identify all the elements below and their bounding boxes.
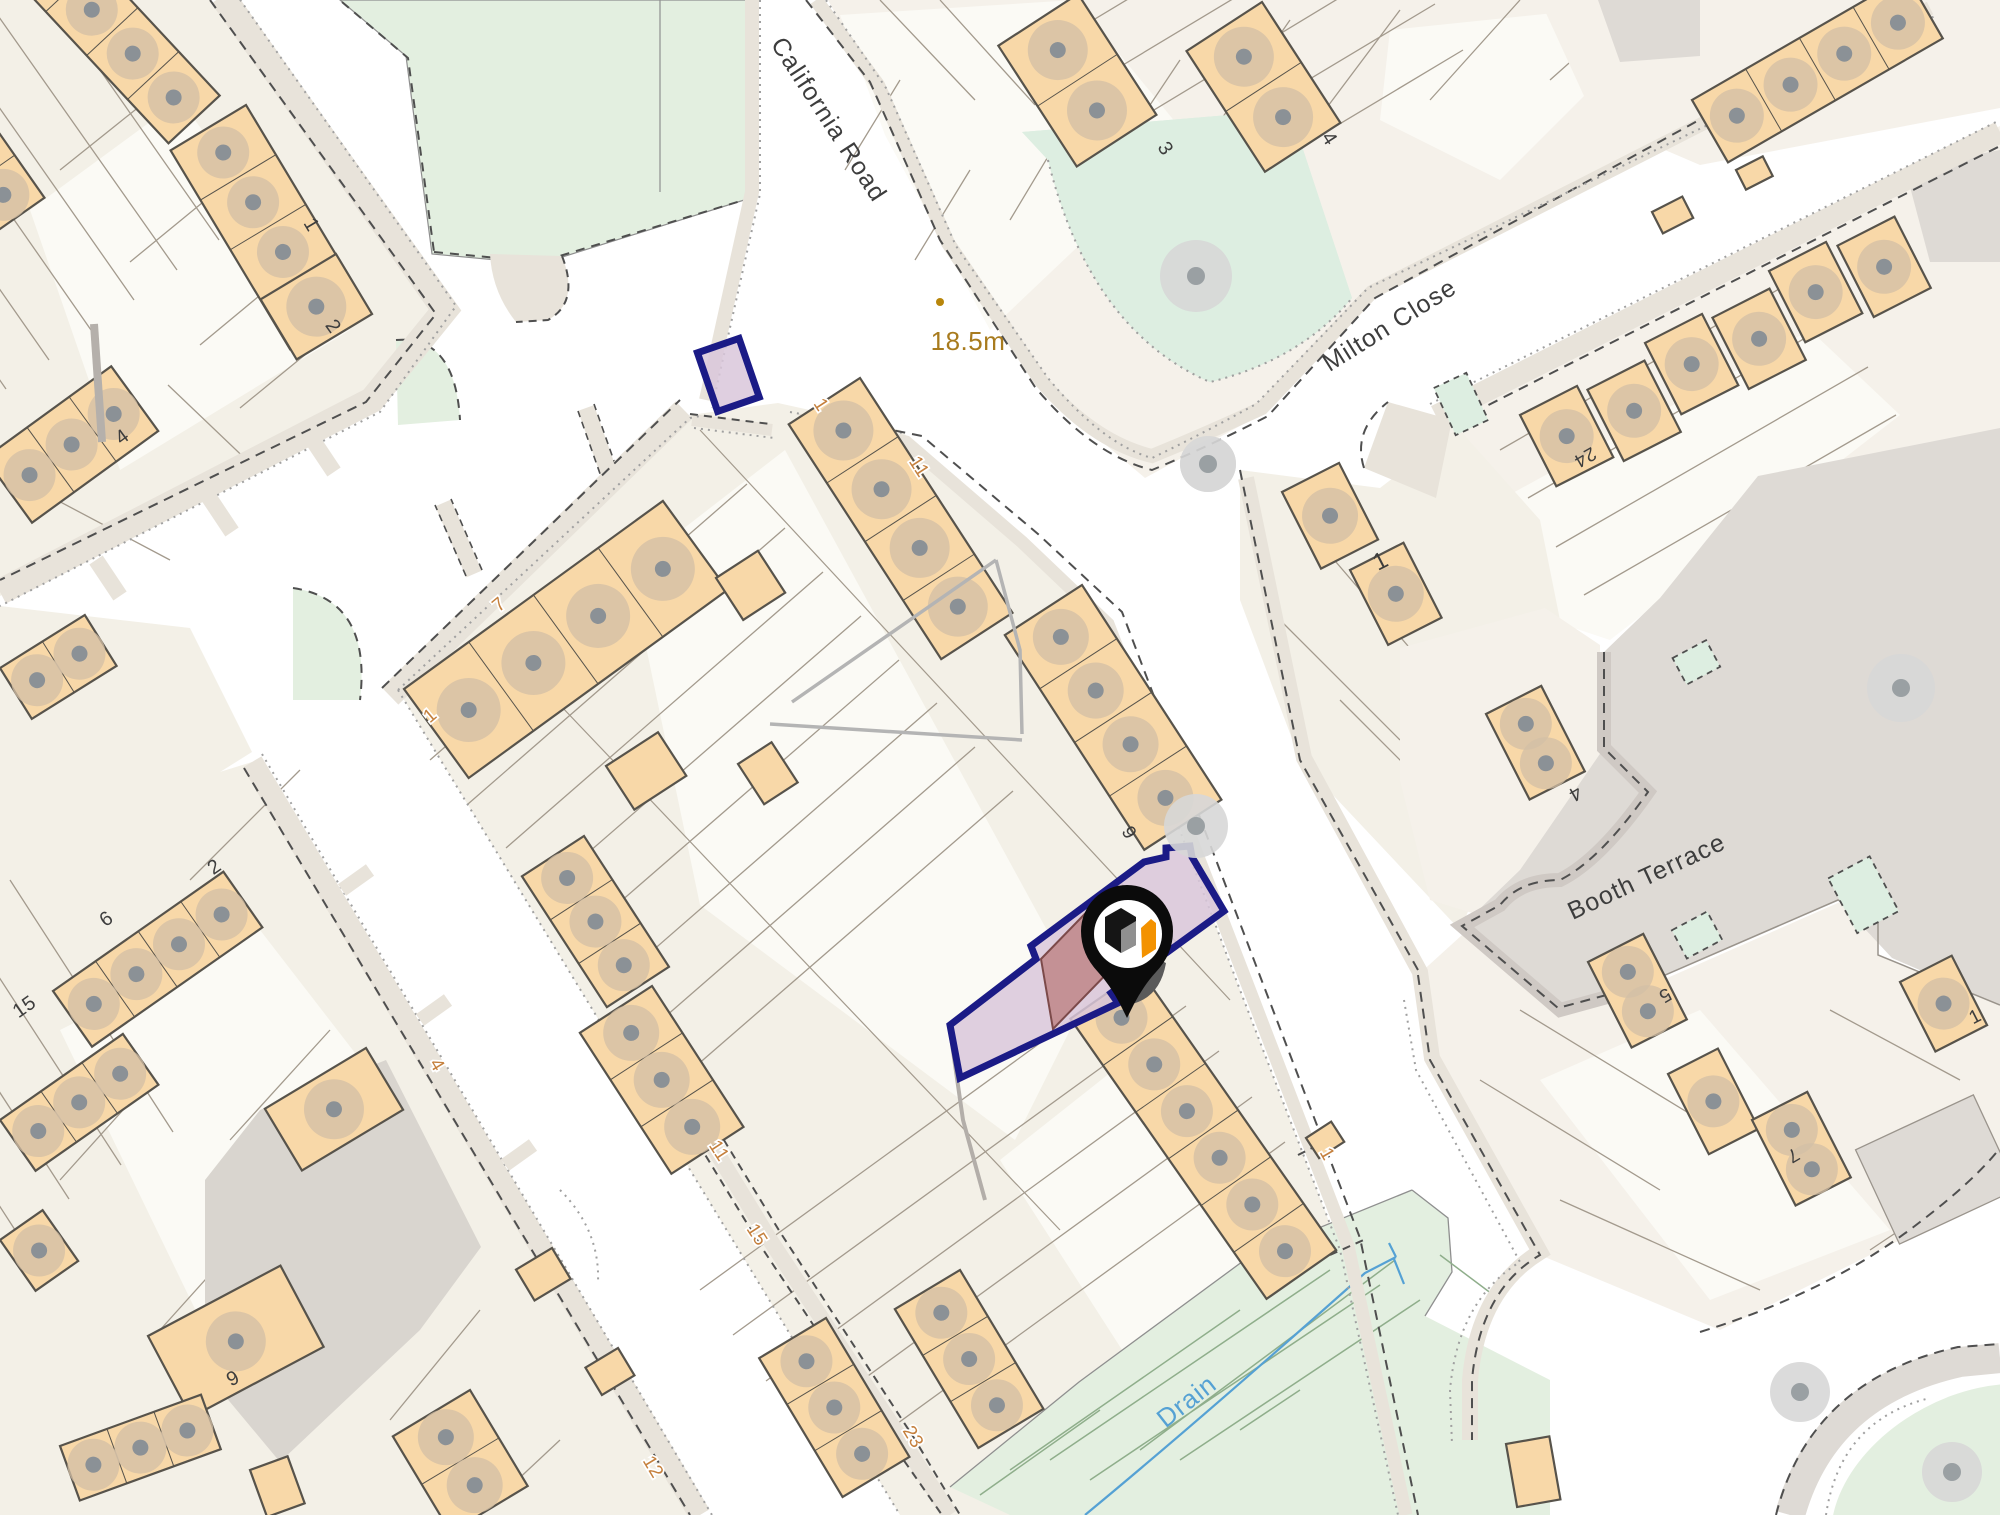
- svg-text:18.5m: 18.5m: [931, 326, 1006, 356]
